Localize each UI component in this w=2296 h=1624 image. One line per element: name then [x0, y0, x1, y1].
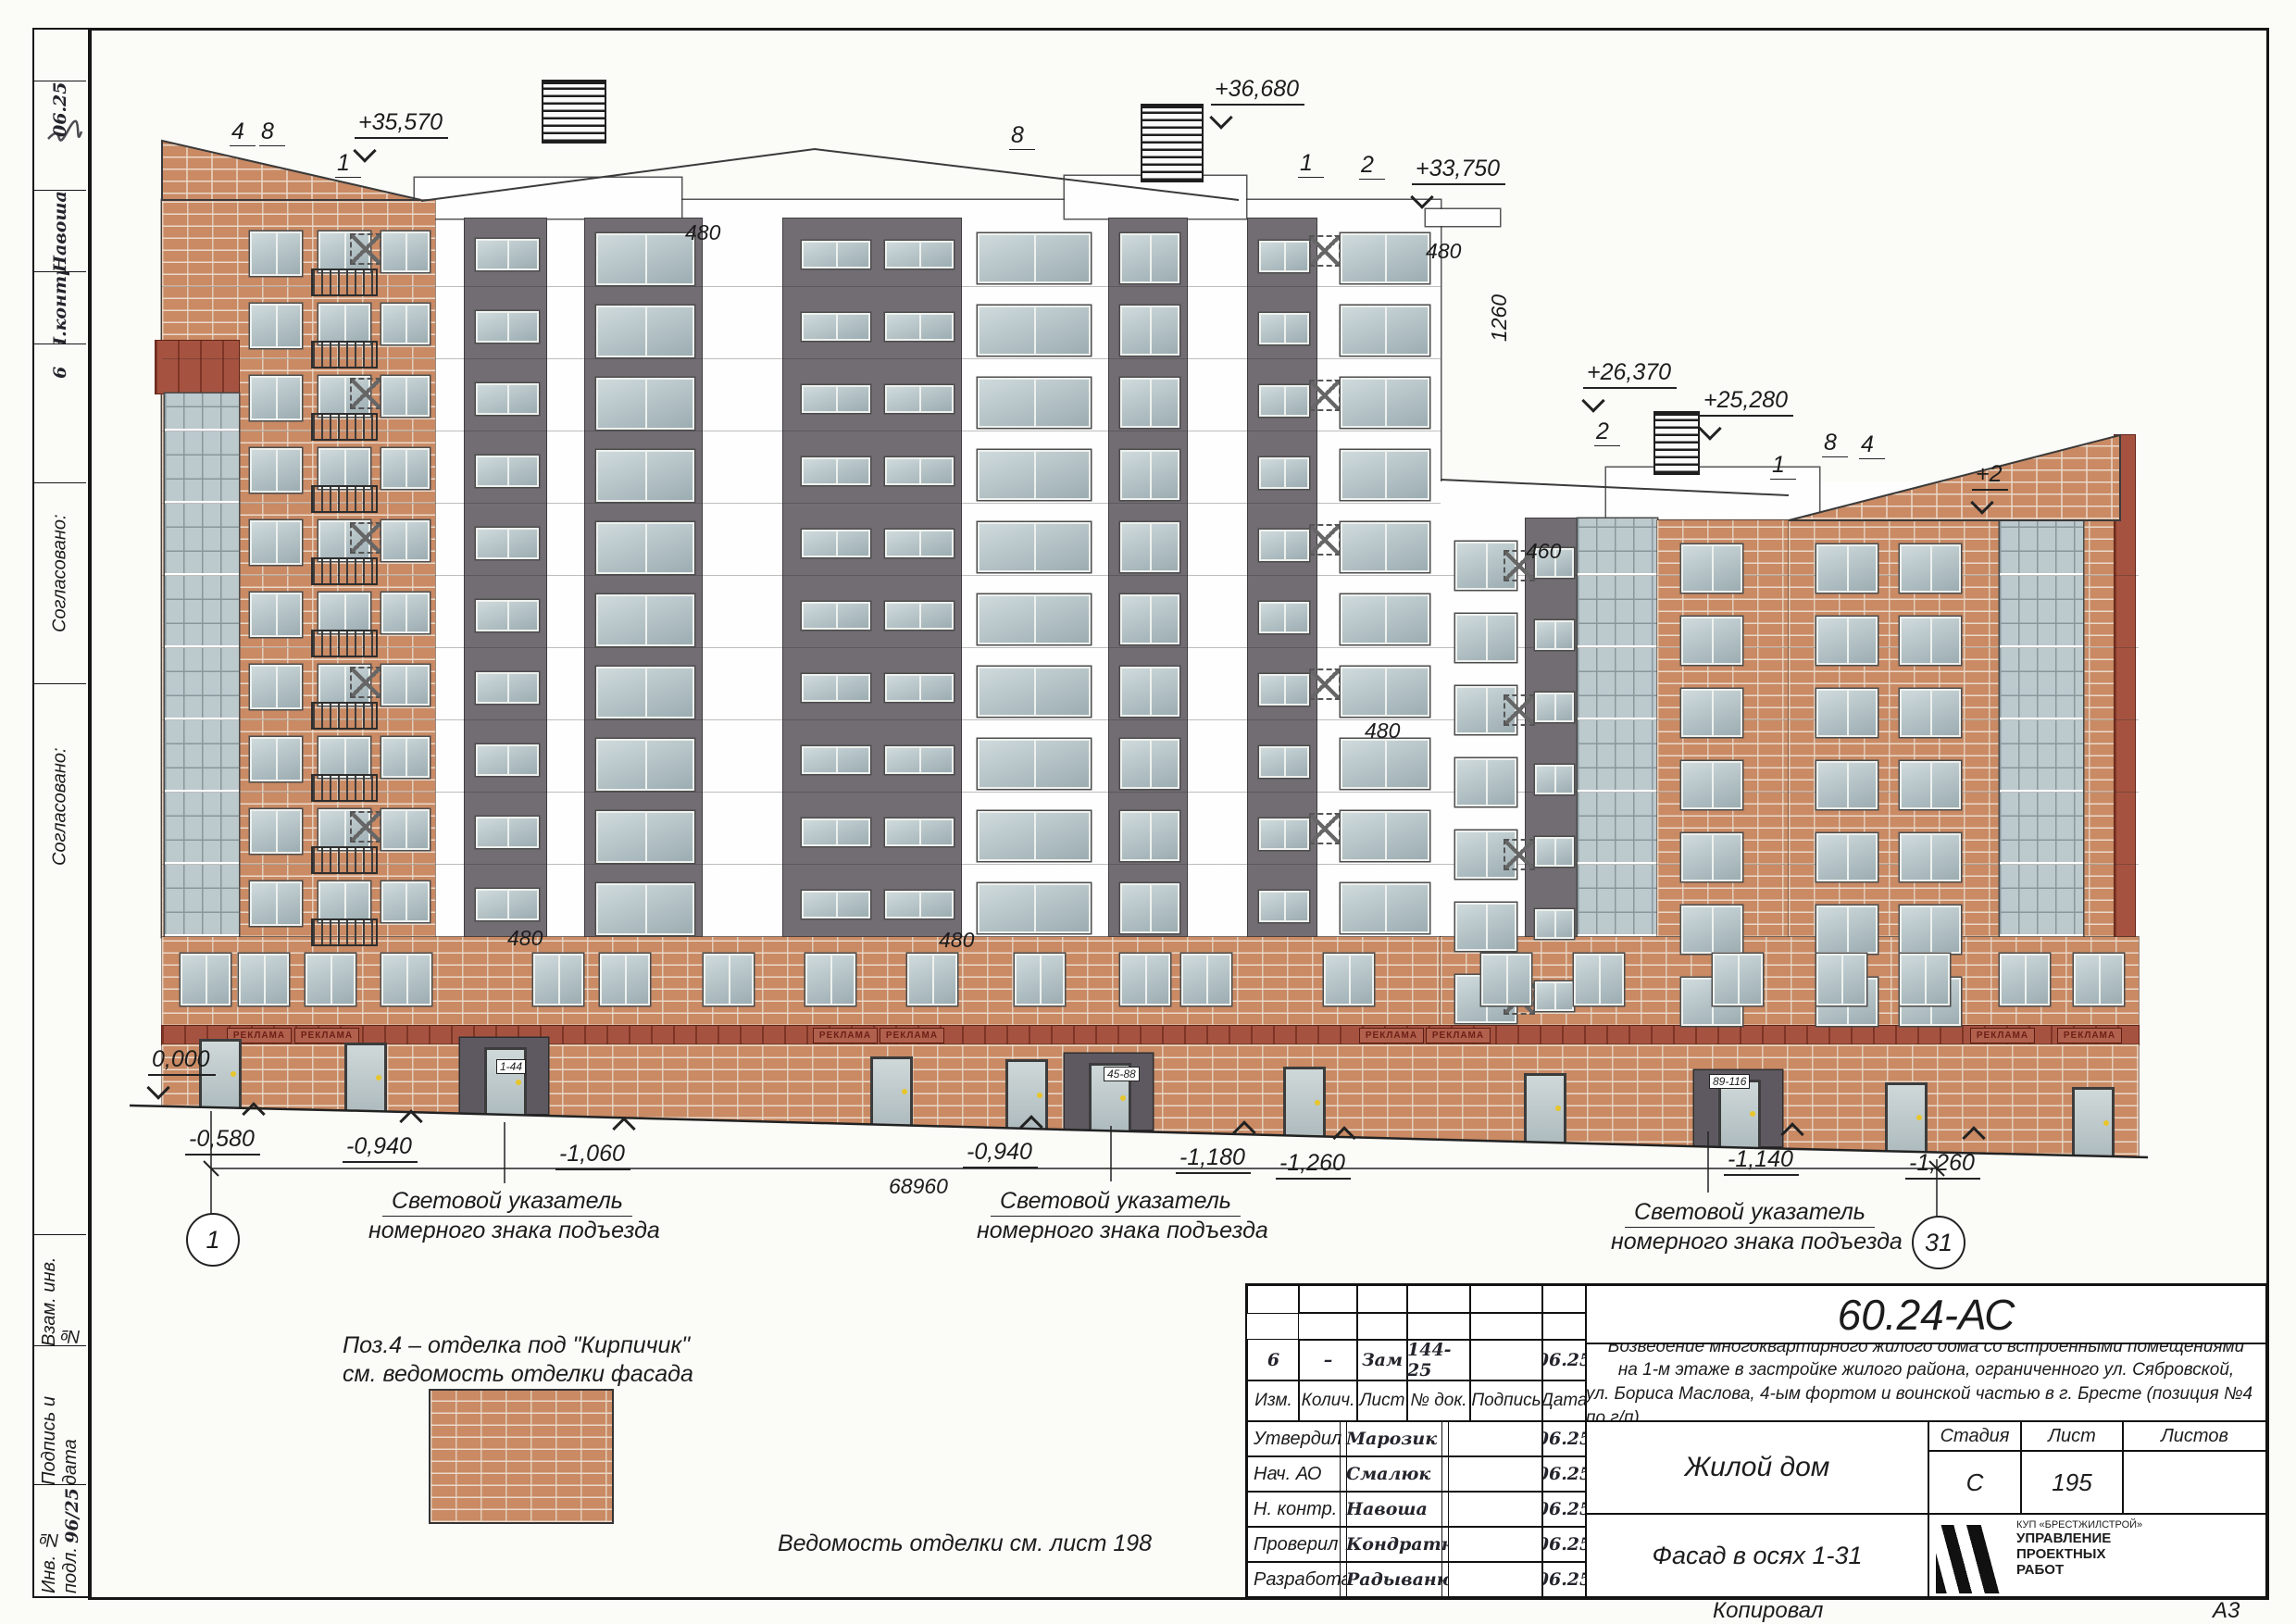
- level-arrow-icon: [612, 1117, 635, 1140]
- level-arrow-icon: [399, 1109, 422, 1132]
- level-arrow-icon: [1232, 1120, 1255, 1143]
- role-label: Утвердил: [1247, 1420, 1347, 1457]
- entrance-sign-note-line2: номерного знака подъезда: [1611, 1228, 1889, 1256]
- elevation-value: +33,750: [1412, 156, 1505, 185]
- stage-label: Стадия: [1928, 1420, 2022, 1452]
- role-date: 06.25: [1541, 1526, 1587, 1563]
- level-arrow-icon: [1962, 1126, 1985, 1149]
- finish-reference: Ведомость отделки см. лист 198: [778, 1530, 1152, 1558]
- role-label: Разработал: [1247, 1561, 1347, 1598]
- entrance-sign-note-line1: Световой указатель: [382, 1187, 632, 1217]
- elevation-mark: +33,750: [1412, 156, 1505, 185]
- sheets-total: [2122, 1450, 2267, 1515]
- role-label: Н. контр.: [1247, 1491, 1347, 1528]
- role-name: Смалюк: [1340, 1455, 1449, 1493]
- change-list: Зам: [1356, 1339, 1408, 1381]
- elevation-mark: +2: [1972, 461, 2008, 491]
- dimension-value: 480: [685, 220, 720, 245]
- doc-code: 60.24-АС: [1585, 1285, 2267, 1344]
- elevation-mark: +35,570: [355, 109, 448, 139]
- hdr-kolich: Колич.: [1298, 1380, 1358, 1422]
- change-date: 06.25: [1541, 1339, 1587, 1381]
- role-signature: [1441, 1455, 1543, 1493]
- entrance-number-plate: 89-116: [1709, 1074, 1750, 1089]
- level-arrow-icon: [1581, 389, 1604, 412]
- entrance-sign-note-line2: номерного знака подъезда: [977, 1217, 1254, 1245]
- stage-value: С: [1928, 1450, 2022, 1515]
- elevation-value: -1,260: [1276, 1150, 1351, 1180]
- level-arrow-icon: [1970, 491, 1993, 514]
- dimension-value: 480: [1365, 718, 1400, 743]
- dimension-value: 480: [1426, 239, 1461, 264]
- object-name: Жилой дом: [1585, 1420, 1929, 1515]
- level-arrow-icon: [1410, 185, 1433, 208]
- elevation-mark: -1,140: [1724, 1146, 1799, 1176]
- dimension-value: 480: [939, 928, 974, 953]
- brick-finish-swatch: [430, 1391, 612, 1522]
- level-arrow-icon: [146, 1076, 169, 1099]
- role-date: 06.25: [1541, 1491, 1587, 1528]
- hdr-doc: № док.: [1406, 1380, 1471, 1422]
- company-name-3: РАБОТ: [2016, 1562, 2142, 1578]
- dimension-value: 480: [507, 926, 543, 951]
- elevation-mark: +25,280: [1700, 387, 1793, 417]
- hdr-sig: Подпись: [1469, 1380, 1543, 1422]
- level-arrow-icon: [1698, 417, 1721, 440]
- company-name-top: КУП «БРЕСТЖИЛСТРОЙ»: [2016, 1519, 2142, 1530]
- finish-note-line2: см. ведомость отделки фасада: [343, 1360, 693, 1389]
- axis-leader-label: 8: [1009, 122, 1035, 150]
- entrance-sign-note-line2: номерного знака подъезда: [368, 1217, 646, 1245]
- entrance-sign-note-line1: Световой указатель: [1625, 1198, 1875, 1228]
- change-signature: [1469, 1339, 1543, 1381]
- level-arrow-icon: [1019, 1115, 1042, 1138]
- entrance-sign-note: Световой указательномерного знака подъез…: [1611, 1198, 1889, 1257]
- axis-leader-label: 4: [1859, 431, 1885, 459]
- axis-bubble: 31: [1912, 1216, 1965, 1269]
- company-name-2: ПРОЕКТНЫХ: [2016, 1546, 2142, 1562]
- axis-leader-label: 1: [1298, 150, 1324, 178]
- elevation-value: -1,060: [555, 1141, 630, 1170]
- level-arrow-icon: [1780, 1122, 1803, 1145]
- company-name-1: УПРАВЛЕНИЕ: [2016, 1530, 2142, 1546]
- elevation-mark: -1,260: [1276, 1150, 1351, 1180]
- level-arrow-icon: [1332, 1126, 1355, 1149]
- elevation-mark: +26,370: [1583, 359, 1677, 389]
- hdr-list: Лист: [1356, 1380, 1408, 1422]
- elevation-mark: -0,940: [963, 1139, 1038, 1168]
- level-arrow-icon: [1209, 106, 1232, 129]
- role-name: Марозик: [1340, 1420, 1449, 1457]
- finish-note-line1: Поз.4 – отделка под "Кирпичик": [343, 1331, 693, 1360]
- role-date: 06.25: [1541, 1420, 1587, 1457]
- elevation-value: +25,280: [1700, 387, 1793, 417]
- dimension-value: 68960: [889, 1174, 948, 1199]
- company-logo: [1936, 1525, 2008, 1593]
- hdr-date: Дата: [1541, 1380, 1587, 1422]
- role-signature: [1441, 1420, 1543, 1457]
- sheet-number: 195: [2020, 1450, 2124, 1515]
- elevation-value: -0,940: [343, 1133, 418, 1163]
- elevation-value: -1,260: [1905, 1150, 1980, 1180]
- elevation-value: -0,580: [185, 1126, 260, 1156]
- entrance-number-plate: 45-88: [1104, 1067, 1140, 1081]
- elevation-mark: -0,940: [343, 1133, 418, 1163]
- role-name: Навоша: [1340, 1491, 1449, 1528]
- role-label: Нач. АО: [1247, 1455, 1347, 1493]
- elevation-value: -1,140: [1724, 1146, 1799, 1176]
- elevation-mark: +36,680: [1211, 76, 1304, 106]
- elevation-value: +2: [1972, 461, 2008, 491]
- level-arrow-icon: [242, 1102, 265, 1125]
- axis-leader-label: 1: [1770, 452, 1796, 480]
- title-block: 6 – Зам 144-25 06.25 Изм. Колич. Лист № …: [1245, 1283, 2267, 1598]
- change-izm: 6: [1247, 1339, 1300, 1381]
- sheet-label: Лист: [2020, 1420, 2124, 1452]
- change-doc: 144-25: [1406, 1339, 1471, 1381]
- axis-leader-label: 8: [1822, 430, 1848, 457]
- project-desc-2: на 1-м этаже в застройке жилого района, …: [1618, 1358, 2234, 1382]
- change-kolich: –: [1298, 1339, 1358, 1381]
- dimension-value: 460: [1526, 539, 1561, 564]
- elevation-value: -0,940: [963, 1139, 1038, 1168]
- elevation-value: 0,000: [148, 1046, 216, 1076]
- role-name: Радыванюк: [1340, 1561, 1449, 1598]
- entrance-sign-note-line1: Световой указатель: [991, 1187, 1241, 1217]
- elevation-mark: -1,060: [555, 1141, 630, 1170]
- axis-leader-label: 1: [335, 150, 361, 178]
- role-date: 06.25: [1541, 1561, 1587, 1598]
- entrance-number-plate: 1-44: [496, 1059, 526, 1074]
- elevation-value: +26,370: [1583, 359, 1677, 389]
- elevation-mark: -1,180: [1176, 1144, 1251, 1174]
- elevation-mark: 0,000: [148, 1046, 216, 1076]
- axis-leader-label: 8: [259, 119, 285, 146]
- hdr-izm: Изм.: [1247, 1380, 1300, 1422]
- project-desc-1: Возведение многоквартирного жилого дома …: [1608, 1343, 2244, 1358]
- role-name: Кондратюк: [1340, 1526, 1449, 1563]
- elevation-value: +35,570: [355, 109, 448, 139]
- entrance-sign-note: Световой указательномерного знака подъез…: [977, 1187, 1254, 1246]
- format-label: А3: [2213, 1598, 2240, 1624]
- axis-bubble: 1: [186, 1213, 240, 1267]
- elevation-mark: -0,580: [185, 1126, 260, 1156]
- role-date: 06.25: [1541, 1455, 1587, 1493]
- axis-leader-label: 2: [1359, 152, 1385, 180]
- axis-leader-label: 2: [1594, 418, 1620, 446]
- role-signature: [1441, 1491, 1543, 1528]
- project-desc-3: ул. Бориса Маслова, 4-ым фортом и воинск…: [1586, 1382, 2266, 1422]
- sheets-label: Листов: [2122, 1420, 2267, 1452]
- role-signature: [1441, 1526, 1543, 1563]
- axis-leader-label: 4: [230, 119, 256, 146]
- finish-note: Поз.4 – отделка под "Кирпичик" см. ведом…: [343, 1331, 693, 1390]
- dimension-value: 1260: [1487, 294, 1512, 342]
- elevation-value: +36,680: [1211, 76, 1304, 106]
- drawing-name: Фасад в осях 1-31: [1585, 1513, 1929, 1598]
- elevation-value: -1,180: [1176, 1144, 1251, 1174]
- copied-label: Копировал: [1713, 1598, 1823, 1624]
- elevation-mark: -1,260: [1905, 1150, 1980, 1180]
- entrance-sign-note: Световой указательномерного знака подъез…: [368, 1187, 646, 1246]
- role-label: Проверил: [1247, 1526, 1347, 1563]
- role-signature: [1441, 1561, 1543, 1598]
